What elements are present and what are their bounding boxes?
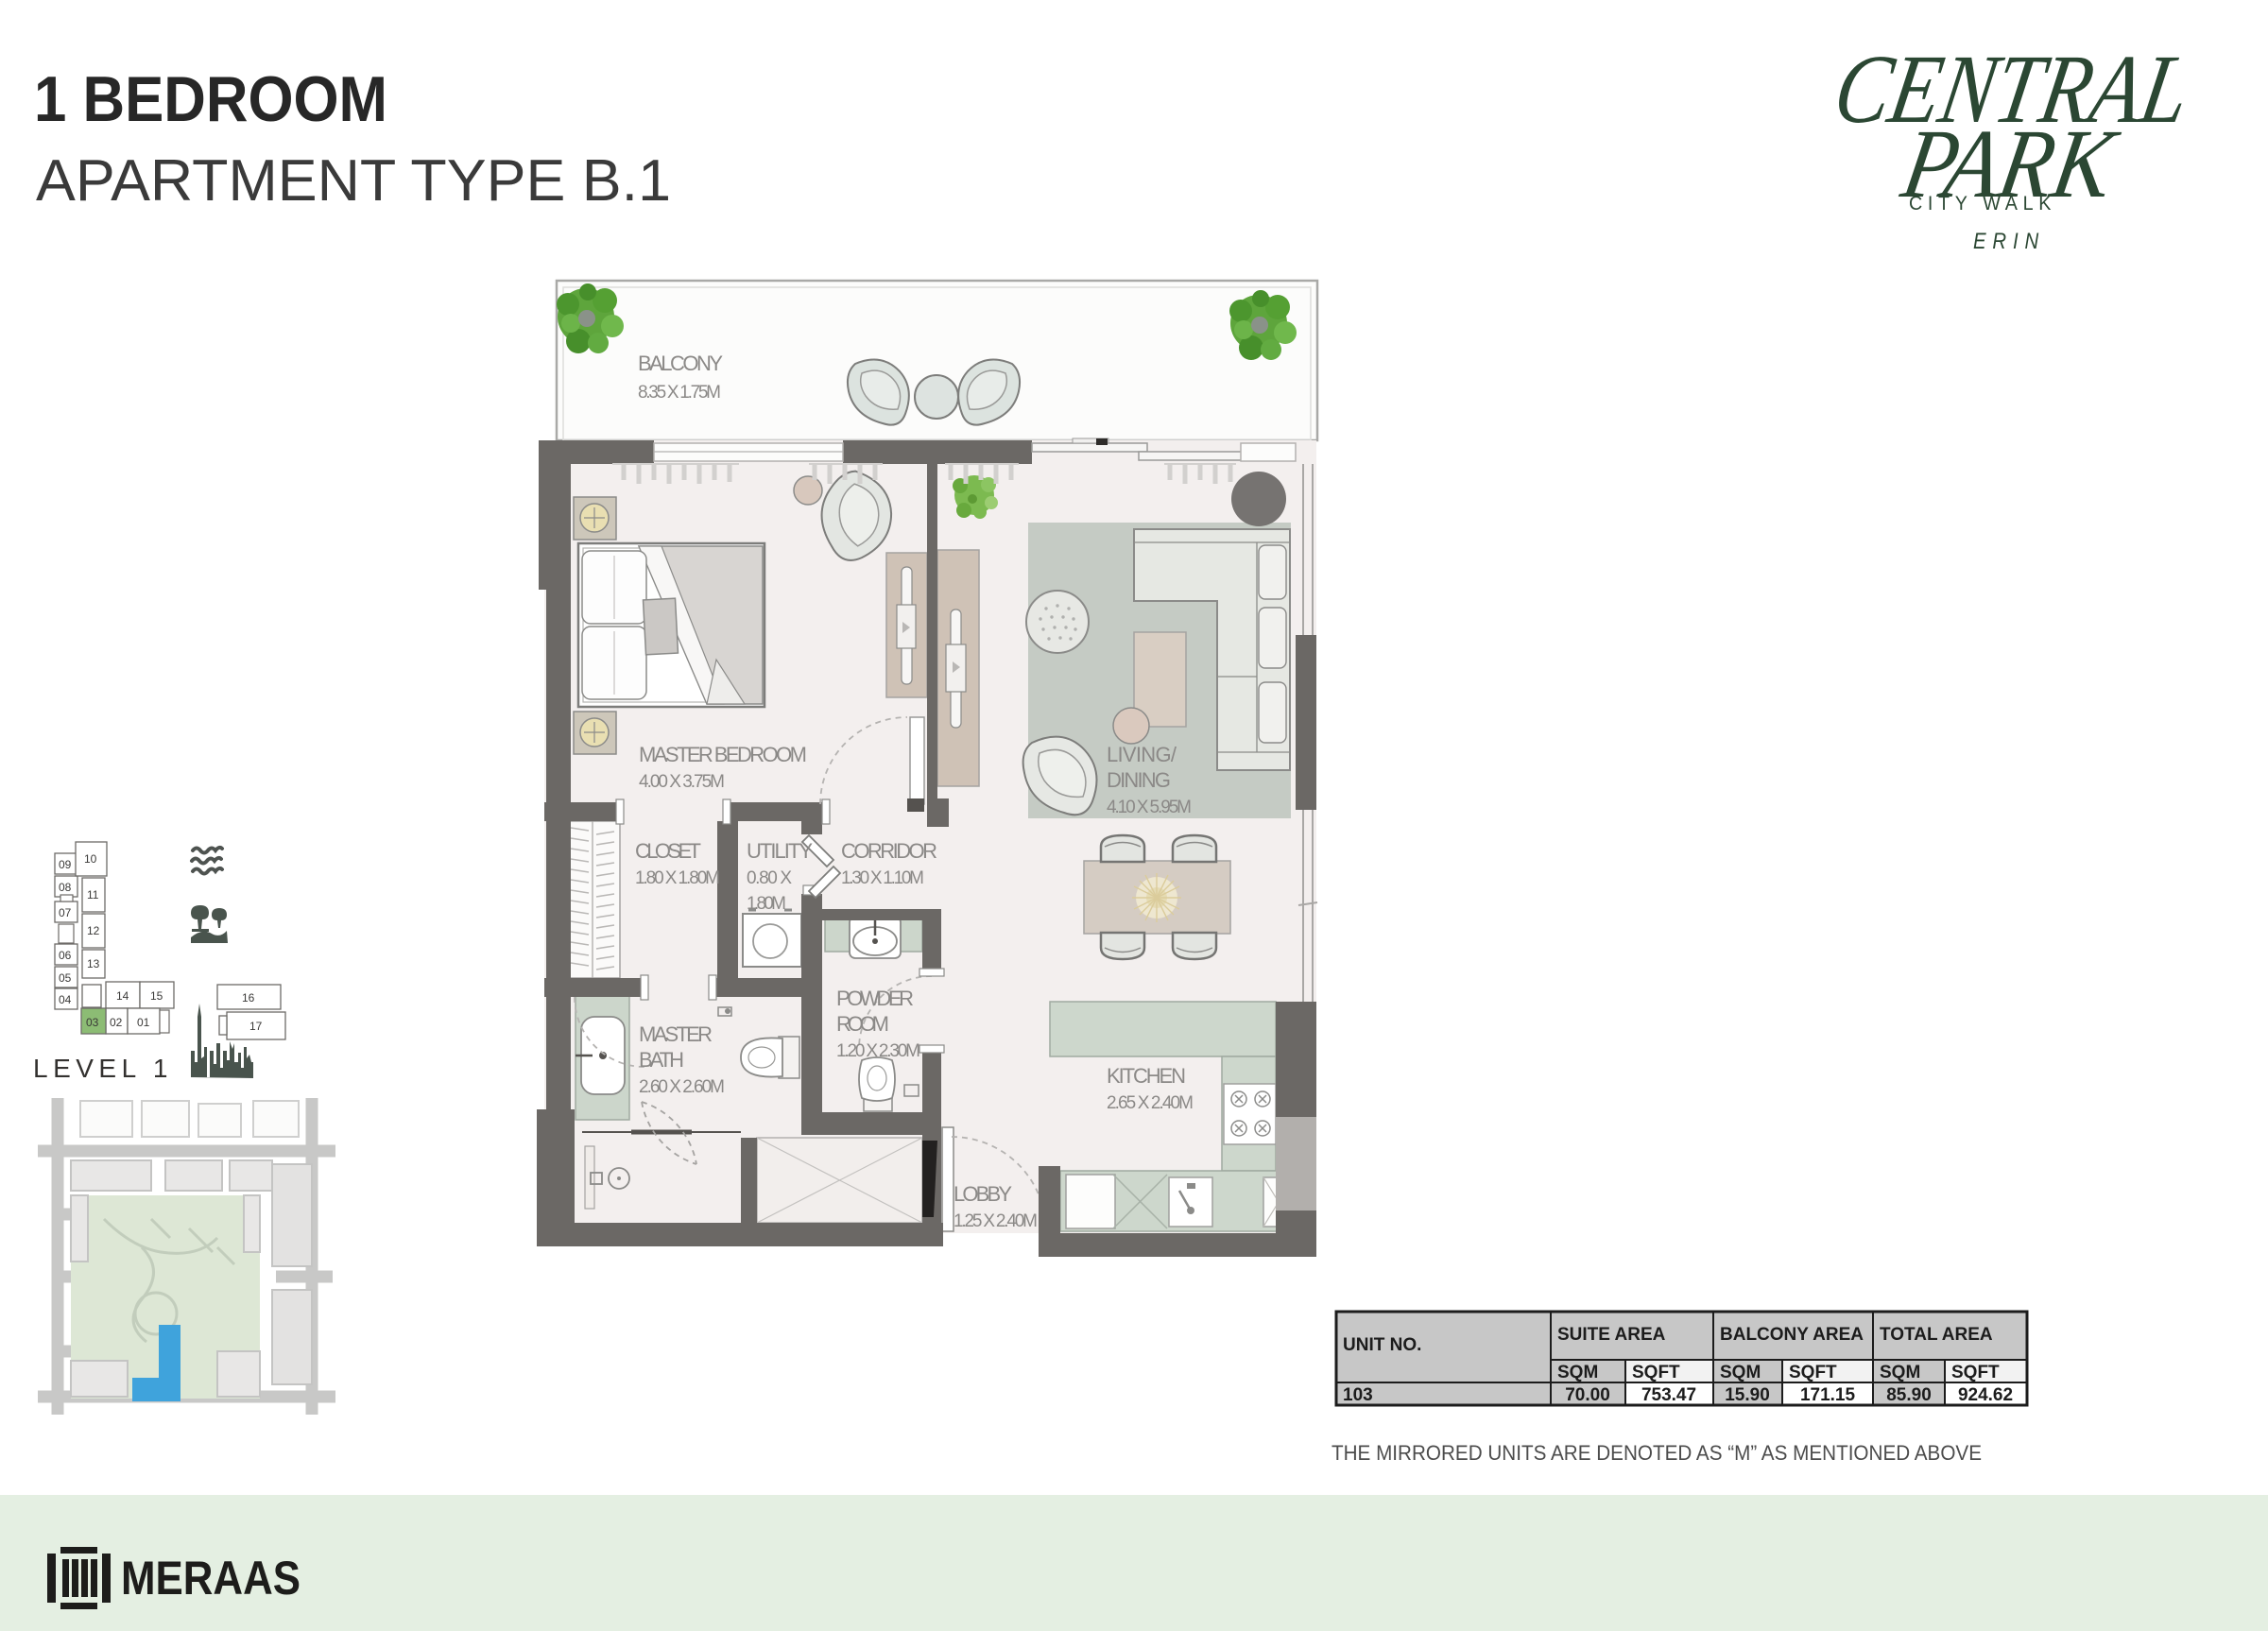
svg-text:4.10 X 5.95M: 4.10 X 5.95M: [1107, 798, 1192, 817]
svg-text:CLOSET: CLOSET: [635, 839, 701, 863]
svg-text:BATH: BATH: [639, 1048, 684, 1072]
svg-text:LIVING/: LIVING/: [1107, 743, 1177, 766]
svg-text:POWDER: POWDER: [836, 987, 914, 1010]
svg-text:15.90: 15.90: [1725, 1385, 1770, 1405]
svg-text:1.20 X 2.30M: 1.20 X 2.30M: [836, 1041, 920, 1061]
svg-text:TOTAL AREA: TOTAL AREA: [1880, 1325, 1993, 1345]
svg-text:03: 03: [86, 1016, 99, 1029]
svg-text:1 BEDROOM: 1 BEDROOM: [34, 63, 387, 135]
svg-text:1.80M: 1.80M: [747, 894, 786, 914]
svg-text:2.65 X 2.40M: 2.65 X 2.40M: [1107, 1093, 1194, 1113]
svg-text:171.15: 171.15: [1800, 1385, 1856, 1405]
svg-text:16: 16: [242, 991, 255, 1004]
svg-text:SQM: SQM: [1720, 1363, 1761, 1382]
svg-text:01: 01: [137, 1016, 150, 1029]
svg-text:17: 17: [249, 1020, 263, 1033]
svg-text:12: 12: [87, 924, 100, 937]
svg-text:8.35 X 1.75M: 8.35 X 1.75M: [638, 383, 721, 403]
svg-text:02: 02: [110, 1016, 123, 1029]
svg-text:753.47: 753.47: [1641, 1385, 1696, 1405]
svg-text:UNIT NO.: UNIT NO.: [1343, 1335, 1421, 1355]
svg-text:THE MIRRORED UNITS ARE DENOTED: THE MIRRORED UNITS ARE DENOTED AS “M” AS…: [1332, 1441, 1982, 1465]
svg-text:SQM: SQM: [1557, 1363, 1598, 1382]
svg-text:1.80 X 1.80M: 1.80 X 1.80M: [635, 868, 720, 888]
svg-text:09: 09: [59, 858, 72, 871]
svg-text:ROOM: ROOM: [836, 1012, 889, 1036]
svg-text:LEVEL 1: LEVEL 1: [33, 1054, 173, 1083]
svg-text:4.00 X 3.75M: 4.00 X 3.75M: [639, 772, 725, 792]
svg-text:1.30 X 1.10M: 1.30 X 1.10M: [841, 868, 924, 888]
svg-text:SQFT: SQFT: [1789, 1363, 1837, 1382]
svg-text:85.90: 85.90: [1886, 1385, 1932, 1405]
svg-text:04: 04: [59, 993, 72, 1006]
svg-text:0.80 X: 0.80 X: [747, 868, 792, 888]
svg-text:CORRIDOR: CORRIDOR: [841, 839, 937, 863]
svg-text:SQM: SQM: [1880, 1363, 1920, 1382]
svg-text:BALCONY: BALCONY: [638, 352, 723, 375]
svg-text:UTILITY: UTILITY: [747, 839, 813, 863]
svg-text:KITCHEN: KITCHEN: [1107, 1064, 1186, 1088]
svg-text:BALCONY AREA: BALCONY AREA: [1720, 1325, 1864, 1345]
svg-text:08: 08: [59, 881, 72, 894]
svg-text:103: 103: [1343, 1385, 1373, 1405]
svg-text:SQFT: SQFT: [1951, 1363, 2000, 1382]
svg-text:1.25 X 2.40M: 1.25 X 2.40M: [954, 1211, 1038, 1231]
svg-text:15: 15: [150, 989, 163, 1003]
svg-text:10: 10: [84, 852, 97, 866]
svg-text:70.00: 70.00: [1565, 1385, 1610, 1405]
svg-text:SQFT: SQFT: [1632, 1363, 1680, 1382]
svg-text:APARTMENT TYPE B.1: APARTMENT TYPE B.1: [36, 148, 671, 214]
svg-text:MASTER BEDROOM: MASTER BEDROOM: [639, 743, 807, 766]
svg-text:LOBBY: LOBBY: [954, 1182, 1012, 1206]
svg-text:MERAAS: MERAAS: [121, 1552, 301, 1605]
svg-text:14: 14: [116, 989, 129, 1003]
svg-text:DINING: DINING: [1107, 768, 1171, 792]
svg-text:11: 11: [87, 888, 99, 901]
svg-text:924.62: 924.62: [1958, 1385, 2013, 1405]
svg-text:13: 13: [87, 957, 100, 970]
svg-text:ERIN: ERIN: [1973, 229, 2045, 254]
svg-text:CITY WALK: CITY WALK: [1909, 193, 2056, 215]
svg-text:06: 06: [59, 949, 72, 962]
svg-text:MASTER: MASTER: [639, 1022, 713, 1046]
svg-text:2.60 X 2.60M: 2.60 X 2.60M: [639, 1077, 725, 1097]
svg-text:07: 07: [59, 906, 72, 919]
svg-text:SUITE AREA: SUITE AREA: [1557, 1325, 1666, 1345]
svg-text:05: 05: [59, 971, 72, 985]
